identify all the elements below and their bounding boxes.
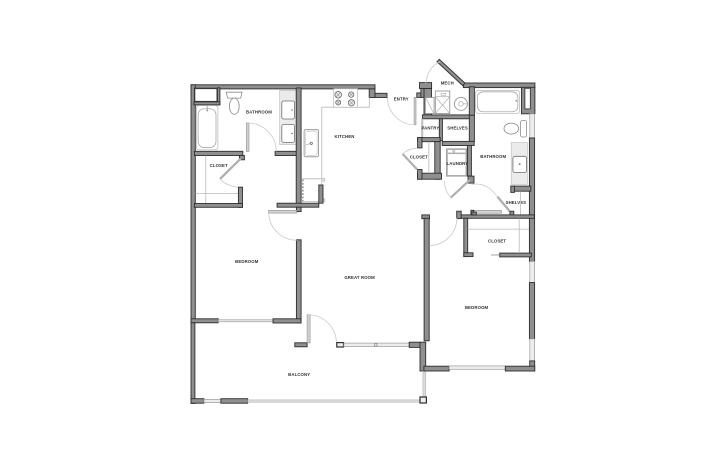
svg-text:LAUNDRY: LAUNDRY xyxy=(447,161,469,166)
svg-text:BEDROOM: BEDROOM xyxy=(465,305,489,310)
svg-text:CLOSET: CLOSET xyxy=(210,163,228,168)
svg-text:GREAT ROOM: GREAT ROOM xyxy=(344,275,375,280)
svg-text:PANTRY: PANTRY xyxy=(421,126,439,131)
svg-text:CLOSET: CLOSET xyxy=(488,239,506,244)
svg-text:BATHROOM: BATHROOM xyxy=(246,110,272,115)
svg-text:CLOSET: CLOSET xyxy=(410,155,428,160)
svg-text:SHELVES: SHELVES xyxy=(447,125,468,130)
svg-text:BATHROOM: BATHROOM xyxy=(480,154,506,159)
svg-text:BEDROOM: BEDROOM xyxy=(235,259,259,264)
svg-text:KITCHEN: KITCHEN xyxy=(335,134,355,139)
svg-text:MECH: MECH xyxy=(441,81,454,86)
svg-text:SHELVES: SHELVES xyxy=(506,200,527,205)
svg-text:ENTRY: ENTRY xyxy=(394,97,409,102)
svg-text:BALCONY: BALCONY xyxy=(288,372,310,377)
